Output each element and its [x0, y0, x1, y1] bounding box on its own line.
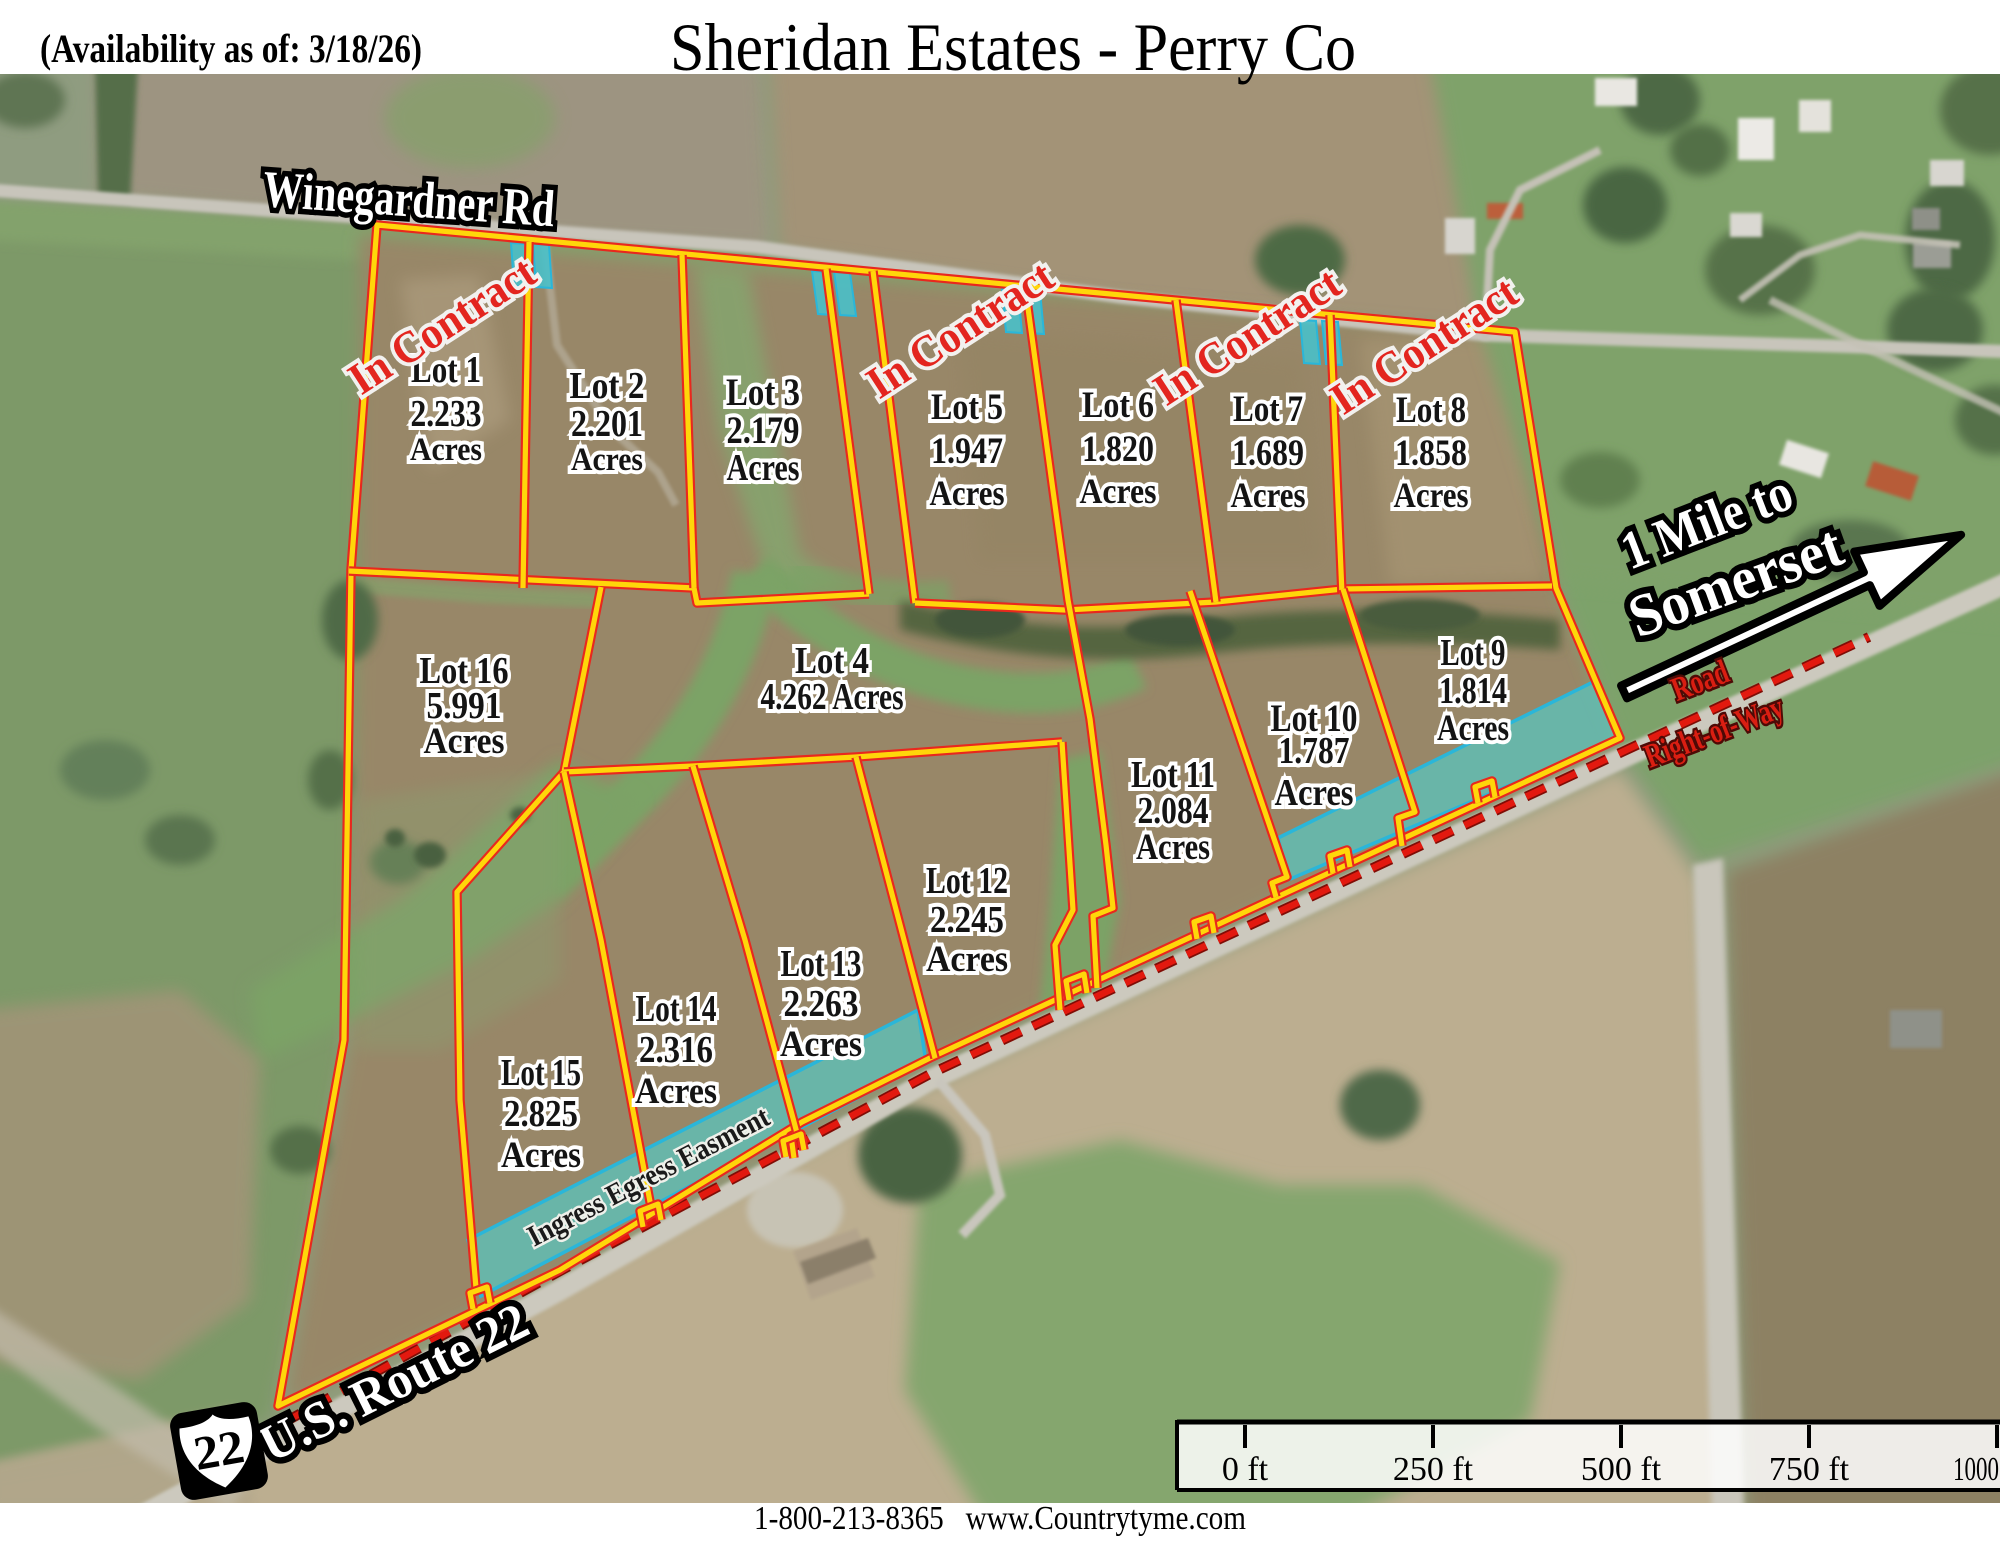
- svg-text:1.814: 1.814: [1439, 670, 1507, 712]
- svg-text:2.263: 2.263: [784, 983, 859, 1025]
- svg-text:Acres: Acres: [501, 1135, 581, 1176]
- svg-text:Acres: Acres: [410, 432, 482, 468]
- svg-text:Acres: Acres: [635, 1071, 717, 1112]
- svg-text:1.820: 1.820: [1082, 429, 1154, 470]
- svg-text:Lot 8: Lot 8: [1396, 390, 1466, 431]
- svg-text:2.316: 2.316: [639, 1029, 713, 1071]
- svg-text:1000: 1000: [1953, 1451, 1999, 1488]
- svg-text:2.233: 2.233: [411, 393, 482, 435]
- svg-text:Acres: Acres: [780, 1024, 862, 1065]
- svg-text:250 ft: 250 ft: [1393, 1451, 1474, 1488]
- svg-text:2.825: 2.825: [504, 1093, 578, 1135]
- svg-text:22: 22: [190, 1420, 248, 1481]
- svg-text:1-800-213-8365 www.Countryty: 1-800-213-8365 www.Countrytyme.com: [754, 1500, 1246, 1537]
- svg-text:2.179: 2.179: [727, 409, 800, 452]
- svg-text:Lot 5: Lot 5: [931, 387, 1003, 428]
- svg-text:Lot 6: Lot 6: [1082, 385, 1154, 426]
- svg-text:1.689: 1.689: [1232, 433, 1304, 474]
- svg-text:2.201: 2.201: [571, 403, 643, 445]
- svg-text:Lot 3: Lot 3: [726, 371, 800, 414]
- svg-text:Lot 7: Lot 7: [1233, 389, 1303, 430]
- svg-text:Sheridan Estates - Perry Co: Sheridan Estates - Perry Co: [670, 9, 1356, 85]
- svg-text:750 ft: 750 ft: [1769, 1451, 1850, 1488]
- svg-text:4.262 Acres: 4.262 Acres: [761, 676, 904, 718]
- svg-text:Lot 15: Lot 15: [501, 1052, 581, 1094]
- svg-text:0 ft: 0 ft: [1222, 1451, 1269, 1488]
- svg-text:Acres: Acres: [727, 447, 800, 489]
- svg-text:Acres: Acres: [930, 473, 1005, 513]
- svg-text:1.947: 1.947: [931, 431, 1003, 472]
- svg-text:1.787: 1.787: [1279, 730, 1350, 772]
- svg-text:Acres: Acres: [1136, 827, 1210, 868]
- svg-text:Acres: Acres: [571, 442, 643, 478]
- svg-text:(Availability as of: 3/18/26): (Availability as of: 3/18/26): [40, 26, 422, 71]
- svg-text:Lot 14: Lot 14: [636, 988, 717, 1030]
- svg-text:Acres: Acres: [424, 721, 505, 762]
- svg-text:Lot 2: Lot 2: [570, 365, 645, 407]
- svg-text:1.858: 1.858: [1395, 433, 1467, 474]
- svg-text:Acres: Acres: [1231, 475, 1306, 515]
- svg-text:Acres: Acres: [1394, 475, 1469, 515]
- svg-text:Lot 9: Lot 9: [1441, 632, 1506, 674]
- svg-text:Acres: Acres: [926, 939, 1008, 980]
- svg-text:2.084: 2.084: [1138, 790, 1209, 832]
- svg-text:Acres: Acres: [1437, 708, 1509, 749]
- svg-text:500 ft: 500 ft: [1581, 1451, 1662, 1488]
- svg-text:Acres: Acres: [1080, 471, 1157, 511]
- svg-text:Lot 13: Lot 13: [781, 943, 862, 985]
- svg-text:Lot 12: Lot 12: [926, 860, 1008, 902]
- svg-text:2.245: 2.245: [930, 899, 1004, 941]
- svg-text:Acres: Acres: [1275, 772, 1354, 814]
